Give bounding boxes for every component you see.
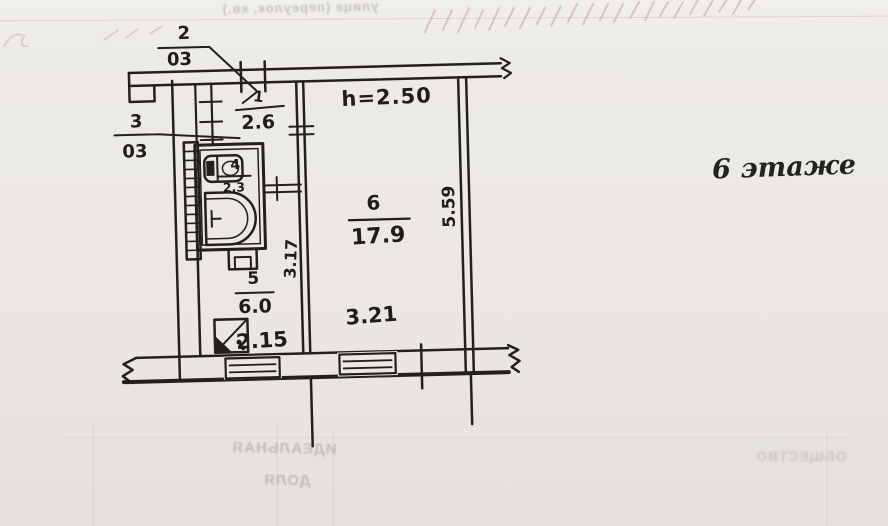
room3-number: 3 — [130, 111, 143, 132]
wall-break-symbol — [122, 358, 137, 383]
kitchen-wall — [198, 250, 201, 356]
floor-number-note: 6 этаже — [712, 149, 857, 185]
bathroom-walls — [195, 143, 303, 251]
below-wall-lines — [311, 373, 473, 446]
dimension-5-59: 5.59 — [439, 185, 460, 227]
room6-area: 17.9 — [350, 222, 406, 250]
right-wall — [458, 77, 474, 371]
floor-plan-drawing: 2 03 3 03 1 2.6 4 2.3 5 6.0 6 17.9 h=2.5… — [0, 0, 888, 526]
room4-number: 4 — [230, 157, 240, 173]
room3-area: 03 — [122, 141, 148, 163]
dimension-3-21: 3.21 — [345, 302, 399, 330]
room1-fraction-bar — [236, 106, 284, 110]
bath-door-tick — [264, 176, 302, 200]
room1-area: 2.6 — [241, 111, 275, 134]
window-symbol — [223, 355, 282, 380]
wall-joint-tick — [421, 344, 422, 388]
room2-number: 2 — [177, 23, 190, 44]
room4-fraction-bar — [219, 176, 251, 177]
room1-number: 1 — [252, 87, 264, 106]
room2-area: 03 — [167, 49, 193, 71]
window-symbol — [337, 351, 398, 377]
bottom-wall — [122, 342, 520, 396]
wall-break-symbol — [501, 58, 512, 78]
scanned-floor-plan-page: улице (переулок, кв.) ИДЕАЛЬНАЯ ДОЛЯ ОБЩ… — [0, 0, 888, 526]
dimension-3-17: 3.17 — [280, 239, 301, 279]
room6-fraction-bar — [349, 219, 410, 221]
room4-area: 2.3 — [223, 179, 246, 195]
room6-number: 6 — [366, 190, 381, 214]
inner-wall — [288, 81, 319, 354]
left-wall — [172, 81, 180, 381]
room5-fraction-bar — [236, 292, 274, 293]
dimension-2-15: 2.15 — [235, 327, 288, 354]
door-tick — [289, 126, 313, 135]
room5-area: 6.0 — [238, 295, 272, 318]
closet-shelves — [195, 84, 223, 145]
toilet-icon — [229, 249, 258, 270]
bathtub-icon — [205, 192, 256, 245]
wall-break-symbol — [508, 345, 520, 372]
ceiling-height-note: h=2.50 — [341, 83, 432, 111]
room5-number: 5 — [247, 269, 259, 289]
